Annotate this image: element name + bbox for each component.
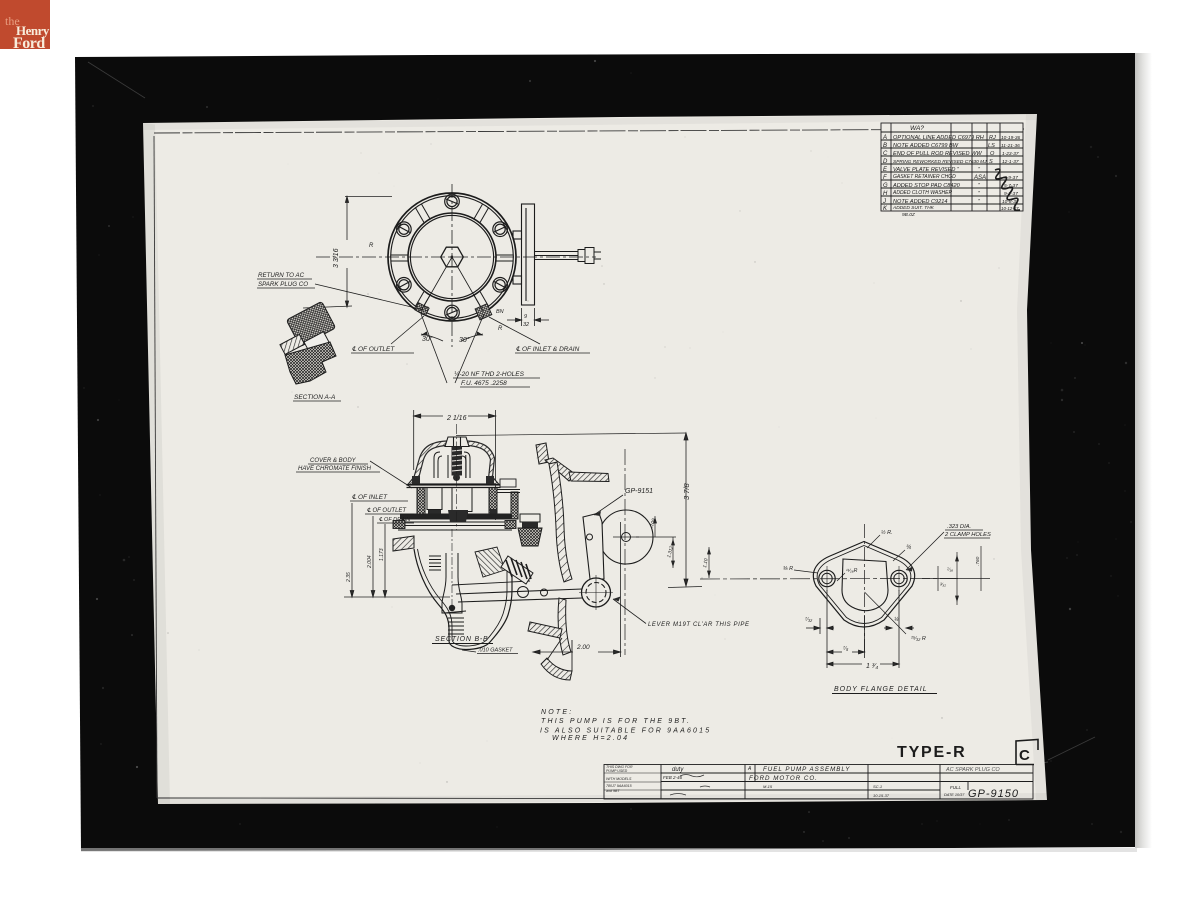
svg-text:HAVE CHROMATE FINISH: HAVE CHROMATE FINISH — [298, 466, 372, 472]
svg-text:℄ OF OUTLET: ℄ OF OUTLET — [367, 507, 407, 514]
svg-text:O: O — [990, 151, 995, 157]
svg-text:NOTE ADDED C6799 BW: NOTE ADDED C6799 BW — [893, 143, 959, 149]
svg-text:32: 32 — [523, 322, 529, 328]
svg-text:⁷∕₃₂: ⁷∕₃₂ — [805, 616, 813, 623]
svg-text:THIS PUMP IS FOR THE 9BT.: THIS PUMP IS FOR THE 9BT. — [541, 718, 691, 725]
svg-text:FORD MOTOR CO.: FORD MOTOR CO. — [749, 775, 818, 782]
svg-text:¼: ¼ — [894, 617, 899, 623]
svg-text:G: G — [883, 183, 888, 189]
svg-text:B: B — [883, 143, 887, 149]
svg-text:10-19-36: 10-19-36 — [1001, 135, 1021, 141]
svg-text:duty: duty — [672, 767, 684, 773]
svg-text:OPTIONAL LINE ADDED C6979 RH: OPTIONAL LINE ADDED C6979 RH — [893, 135, 985, 141]
svg-text:FEB 2-46: FEB 2-46 — [663, 775, 683, 780]
svg-text:1 ³∕₄: 1 ³∕₄ — [866, 663, 878, 670]
svg-text:LS: LS — [988, 143, 995, 149]
svg-text:COVER & BODY: COVER & BODY — [310, 458, 357, 464]
svg-text:SPRING REWORKED REVISED C7630: SPRING REWORKED REVISED C7630 MJ — [893, 159, 987, 165]
svg-text:ADDED SUIT. THK: ADDED SUIT. THK — [892, 205, 935, 211]
svg-text:NOTE ADDED C9214: NOTE ADDED C9214 — [893, 199, 948, 205]
svg-text:ASA: ASA — [973, 175, 986, 181]
svg-text:30°: 30° — [422, 335, 433, 343]
svg-text:⅜ R: ⅜ R — [783, 566, 793, 572]
svg-text:2.00: 2.00 — [576, 644, 590, 651]
svg-text:DATE 10/37: DATE 10/37 — [944, 793, 965, 797]
svg-text:½ R.: ½ R. — [881, 529, 893, 536]
svg-text:F: F — [883, 175, 887, 181]
svg-text:H: H — [883, 191, 888, 197]
svg-text:WA?: WA? — [910, 125, 924, 132]
svg-text:GASKET RETAINER CHGD: GASKET RETAINER CHGD — [893, 174, 956, 180]
svg-text:SPARK PLUG CO: SPARK PLUG CO — [258, 281, 308, 288]
svg-text:9: 9 — [524, 314, 527, 320]
svg-text:AC SPARK PLUG CO: AC SPARK PLUG CO — [945, 767, 1000, 773]
svg-text:A C: A C — [418, 307, 429, 313]
svg-text:⁷∕₈: ⁷∕₈ — [843, 645, 849, 652]
svg-text:END OF PULL ROD REVISED WW: END OF PULL ROD REVISED WW — [893, 151, 982, 157]
svg-text:℄ OF INLET & DRAIN: ℄ OF INLET & DRAIN — [516, 346, 580, 353]
svg-text:F.U. 4675 .2258: F.U. 4675 .2258 — [461, 380, 507, 387]
svg-text:780J7 9AA6015: 780J7 9AA6015 — [606, 784, 632, 788]
svg-text:VALVE PLATE REVISED: VALVE PLATE REVISED — [893, 167, 955, 173]
svg-text:WITH MODELS: WITH MODELS — [606, 777, 632, 781]
svg-text:GP-9151: GP-9151 — [625, 488, 653, 495]
svg-text:1.173: 1.173 — [379, 548, 385, 561]
svg-text:℄ OF DRAIN: ℄ OF DRAIN — [379, 516, 410, 523]
svg-text:and 9BT: and 9BT — [606, 789, 620, 793]
svg-text:NOTE:: NOTE: — [541, 709, 573, 716]
svg-text:¼-20 NF THD 2-HOLES: ¼-20 NF THD 2-HOLES — [454, 371, 525, 378]
svg-text:2 CLAMP HOLES: 2 CLAMP HOLES — [944, 532, 991, 538]
svg-text:TYPE-R: TYPE-R — [897, 744, 966, 761]
svg-text:℄ OF INLET: ℄ OF INLET — [352, 494, 388, 501]
svg-text:2.004: 2.004 — [367, 555, 373, 569]
svg-text:³∕₃₂: ³∕₃₂ — [940, 582, 947, 588]
svg-text:R: R — [498, 326, 503, 332]
svg-text:D: D — [883, 159, 888, 165]
svg-text:.010 GASKET: .010 GASKET — [478, 648, 513, 654]
svg-text:3 3/16: 3 3/16 — [333, 248, 340, 268]
svg-text:RETURN TO AC: RETURN TO AC — [258, 272, 305, 279]
svg-text:2.35: 2.35 — [346, 572, 352, 583]
svg-text:IS ALSO SUITABLE FOR 9AA6015: IS ALSO SUITABLE FOR 9AA6015 — [540, 728, 711, 735]
svg-text:¹¹∕₁₆R: ¹¹∕₁₆R — [846, 568, 858, 574]
svg-text:1-23-37: 1-23-37 — [1002, 151, 1019, 157]
svg-text:BODY FLANGE DETAIL: BODY FLANGE DETAIL — [834, 686, 928, 693]
svg-text:WHERE H=2.04: WHERE H=2.04 — [552, 735, 629, 742]
svg-text:M-15: M-15 — [763, 784, 773, 789]
svg-text:¾: ¾ — [906, 545, 911, 551]
svg-text:FULL: FULL — [950, 785, 962, 790]
svg-text:3 7/8: 3 7/8 — [682, 482, 691, 500]
svg-text:.760: .760 — [975, 556, 981, 566]
svg-text:²⁵∕₃₂ R: ²⁵∕₃₂ R — [911, 635, 926, 642]
svg-text:℄ OF OUTLET: ℄ OF OUTLET — [352, 346, 395, 353]
svg-text:R: R — [369, 243, 374, 249]
svg-text:ADDED STOP PAD C8420: ADDED STOP PAD C8420 — [892, 183, 961, 189]
svg-text:30°: 30° — [459, 336, 470, 344]
svg-text:A: A — [882, 135, 887, 141]
svg-text:11-21-36: 11-21-36 — [1001, 143, 1020, 149]
svg-text:SC-1: SC-1 — [873, 784, 882, 789]
svg-text:12-1-37: 12-1-37 — [1002, 159, 1019, 165]
svg-text:10-15-37: 10-15-37 — [873, 793, 890, 798]
svg-text:SECTION B-B: SECTION B-B — [435, 636, 489, 643]
svg-text:C: C — [883, 151, 888, 157]
svg-text:BN: BN — [496, 309, 504, 315]
svg-text:⁷∕₁₆: ⁷∕₁₆ — [947, 567, 953, 573]
svg-text:GP-9150: GP-9150 — [968, 788, 1019, 800]
svg-text:.323 DIA.: .323 DIA. — [947, 524, 971, 530]
svg-text:C: C — [1019, 747, 1030, 764]
svg-text:FUEL PUMP ASSEMBLY: FUEL PUMP ASSEMBLY — [763, 766, 850, 773]
svg-text:S: S — [989, 159, 993, 165]
svg-text:2 1/16: 2 1/16 — [446, 415, 467, 422]
svg-text:A: A — [747, 766, 752, 772]
svg-text:SECTION A-A: SECTION A-A — [294, 394, 335, 401]
svg-text:LEVER M19T CL’AR THIS PIPE: LEVER M19T CL’AR THIS PIPE — [648, 622, 750, 628]
svg-text:RJ: RJ — [989, 135, 996, 141]
svg-text:ADDED CLOTH WASHER: ADDED CLOTH WASHER — [892, 190, 952, 196]
svg-text:PUMP USED: PUMP USED — [606, 769, 628, 773]
svg-text:9B.0Z: 9B.0Z — [902, 212, 916, 218]
